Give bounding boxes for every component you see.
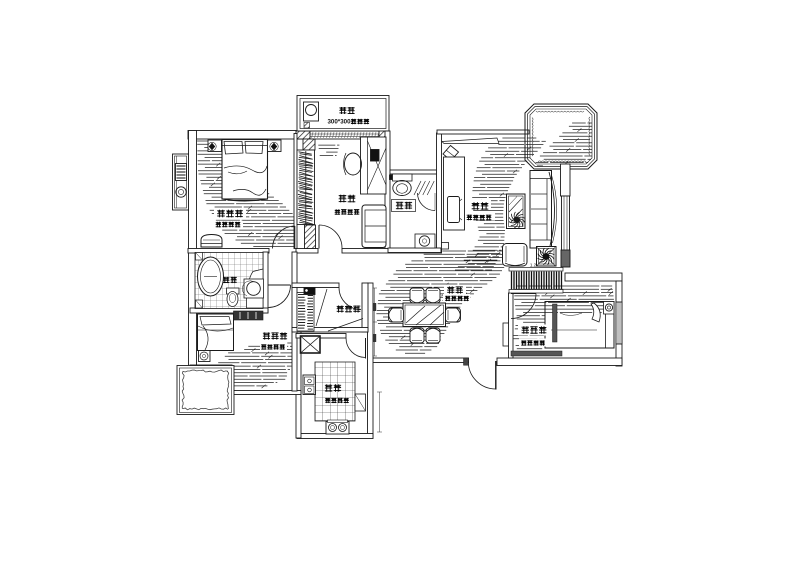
svg-text:300*300: 300*300 [327, 119, 351, 126]
svg-text:1.2: 1.2 [530, 263, 537, 268]
